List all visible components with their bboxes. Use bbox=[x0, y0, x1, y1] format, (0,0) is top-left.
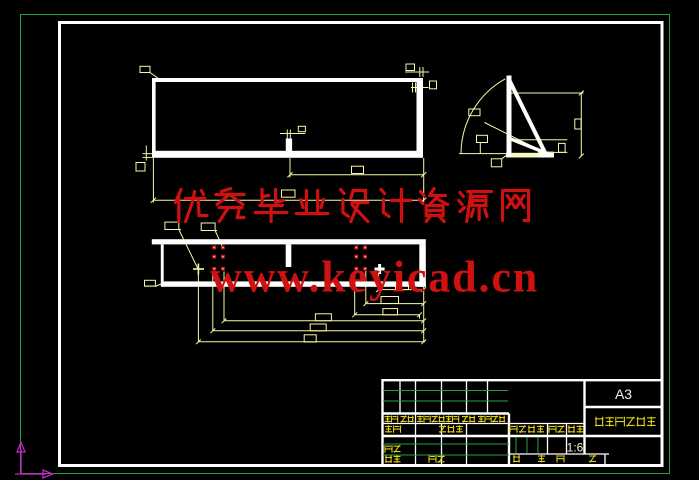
svg-text:A3: A3 bbox=[615, 386, 632, 402]
svg-text:1:6: 1:6 bbox=[567, 441, 584, 455]
svg-text:www.keyicad.cn: www.keyicad.cn bbox=[210, 253, 539, 302]
